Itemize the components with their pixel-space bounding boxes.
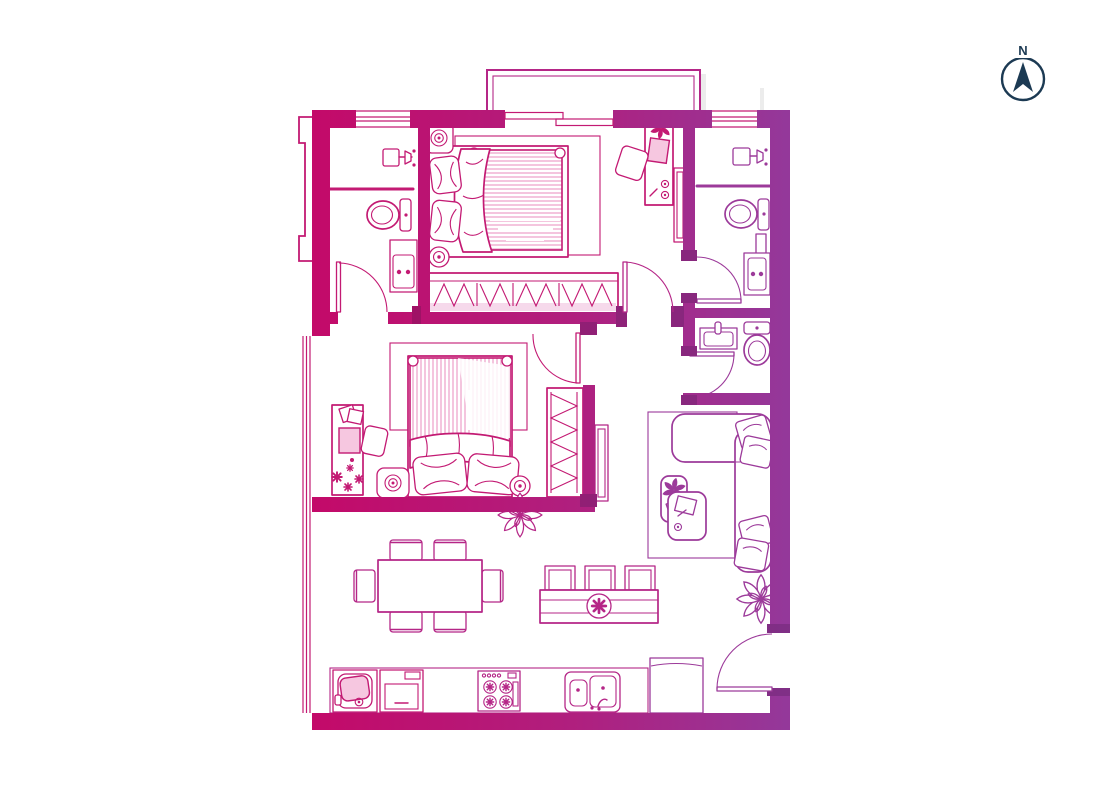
door-ensuite-right bbox=[697, 257, 741, 303]
balcony bbox=[487, 70, 700, 112]
wall-cap bbox=[681, 346, 697, 356]
pillow bbox=[412, 452, 468, 495]
wall-cap bbox=[681, 293, 697, 303]
balcony-shadow bbox=[701, 74, 706, 110]
chair bbox=[434, 611, 466, 632]
chair bbox=[390, 611, 422, 632]
laptop bbox=[339, 428, 360, 453]
window-top-right bbox=[712, 110, 757, 128]
wall-cap bbox=[681, 250, 697, 261]
toilet bbox=[367, 199, 411, 231]
double-bed bbox=[427, 146, 568, 257]
bedroom-2 bbox=[332, 333, 583, 498]
shower-head bbox=[383, 149, 416, 167]
sliding-door-balcony bbox=[505, 110, 613, 128]
shower-head bbox=[733, 148, 768, 166]
stool bbox=[625, 566, 655, 590]
washer-door bbox=[339, 675, 370, 702]
stool bbox=[545, 566, 575, 590]
pillow bbox=[429, 155, 462, 194]
door-master-bedroom bbox=[623, 262, 673, 312]
corridor-tv-panel bbox=[595, 425, 608, 501]
cushion bbox=[734, 537, 770, 571]
door-powder-room bbox=[690, 352, 734, 398]
dining-area bbox=[354, 540, 503, 632]
papers bbox=[347, 409, 363, 425]
powder-room bbox=[690, 322, 770, 398]
bedside-lamp bbox=[377, 468, 409, 498]
entry-door bbox=[717, 634, 772, 691]
wash-basin bbox=[700, 322, 737, 349]
toilet-vertical bbox=[744, 322, 770, 365]
oven bbox=[380, 670, 423, 712]
double-bed bbox=[408, 356, 520, 497]
stool bbox=[585, 566, 615, 590]
pillow bbox=[429, 200, 462, 243]
fridge bbox=[650, 658, 703, 713]
compass-north-label: N bbox=[1018, 43, 1027, 58]
desk-chair bbox=[360, 425, 388, 457]
bathroom-left bbox=[330, 149, 417, 312]
toilet bbox=[725, 199, 769, 230]
wall-shadow bbox=[760, 88, 764, 110]
compass: N bbox=[1002, 42, 1044, 100]
wardrobe-hangers bbox=[427, 273, 618, 313]
window-top-left bbox=[356, 110, 410, 128]
wall-cap bbox=[580, 322, 597, 335]
floor-plan-page: N bbox=[0, 0, 1100, 800]
wall-cap bbox=[580, 494, 597, 507]
chair bbox=[354, 570, 375, 602]
monitor bbox=[647, 138, 669, 163]
bedside-lamp bbox=[429, 247, 449, 267]
ensuite-bathroom-right bbox=[697, 148, 770, 303]
desk bbox=[645, 117, 673, 205]
chair bbox=[390, 540, 422, 561]
chair bbox=[434, 540, 466, 561]
master-bedroom bbox=[426, 117, 686, 313]
coffee-table-with-tray bbox=[668, 492, 706, 540]
compass-needle-icon bbox=[1013, 62, 1033, 92]
dining-table bbox=[378, 560, 482, 612]
media-console bbox=[540, 566, 658, 623]
desk-chair bbox=[614, 145, 649, 182]
living-room bbox=[648, 412, 775, 572]
vanity-sink bbox=[390, 240, 417, 292]
utility-shaft bbox=[299, 117, 312, 261]
wall-cap bbox=[412, 306, 421, 324]
kitchen-sink bbox=[565, 672, 620, 712]
wall-cap bbox=[681, 395, 697, 405]
vanity-sink bbox=[744, 253, 770, 295]
door-bathroom-left bbox=[337, 262, 388, 312]
floor-plan-canvas: N bbox=[0, 0, 1100, 800]
cushion bbox=[739, 435, 774, 469]
stove bbox=[478, 671, 520, 711]
washing-machine bbox=[333, 670, 377, 712]
door-bedroom-2 bbox=[533, 333, 580, 383]
window-left-long bbox=[303, 336, 310, 713]
entry-jamb bbox=[767, 624, 790, 633]
wardrobe-hangers bbox=[547, 388, 583, 497]
medallion bbox=[587, 594, 611, 618]
chair bbox=[482, 570, 503, 602]
kitchen bbox=[330, 658, 703, 713]
